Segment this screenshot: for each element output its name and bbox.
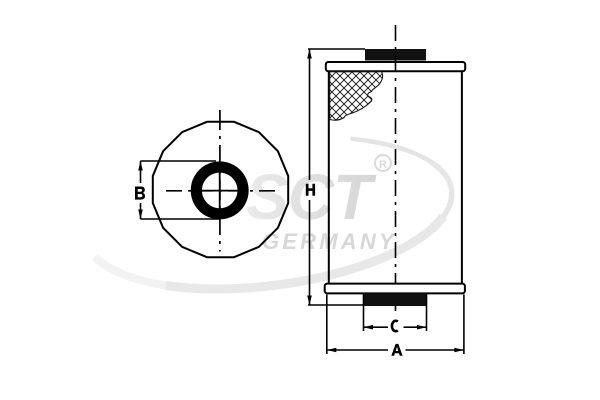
svg-text:R: R: [379, 159, 387, 171]
svg-text:SCT: SCT: [246, 161, 377, 233]
